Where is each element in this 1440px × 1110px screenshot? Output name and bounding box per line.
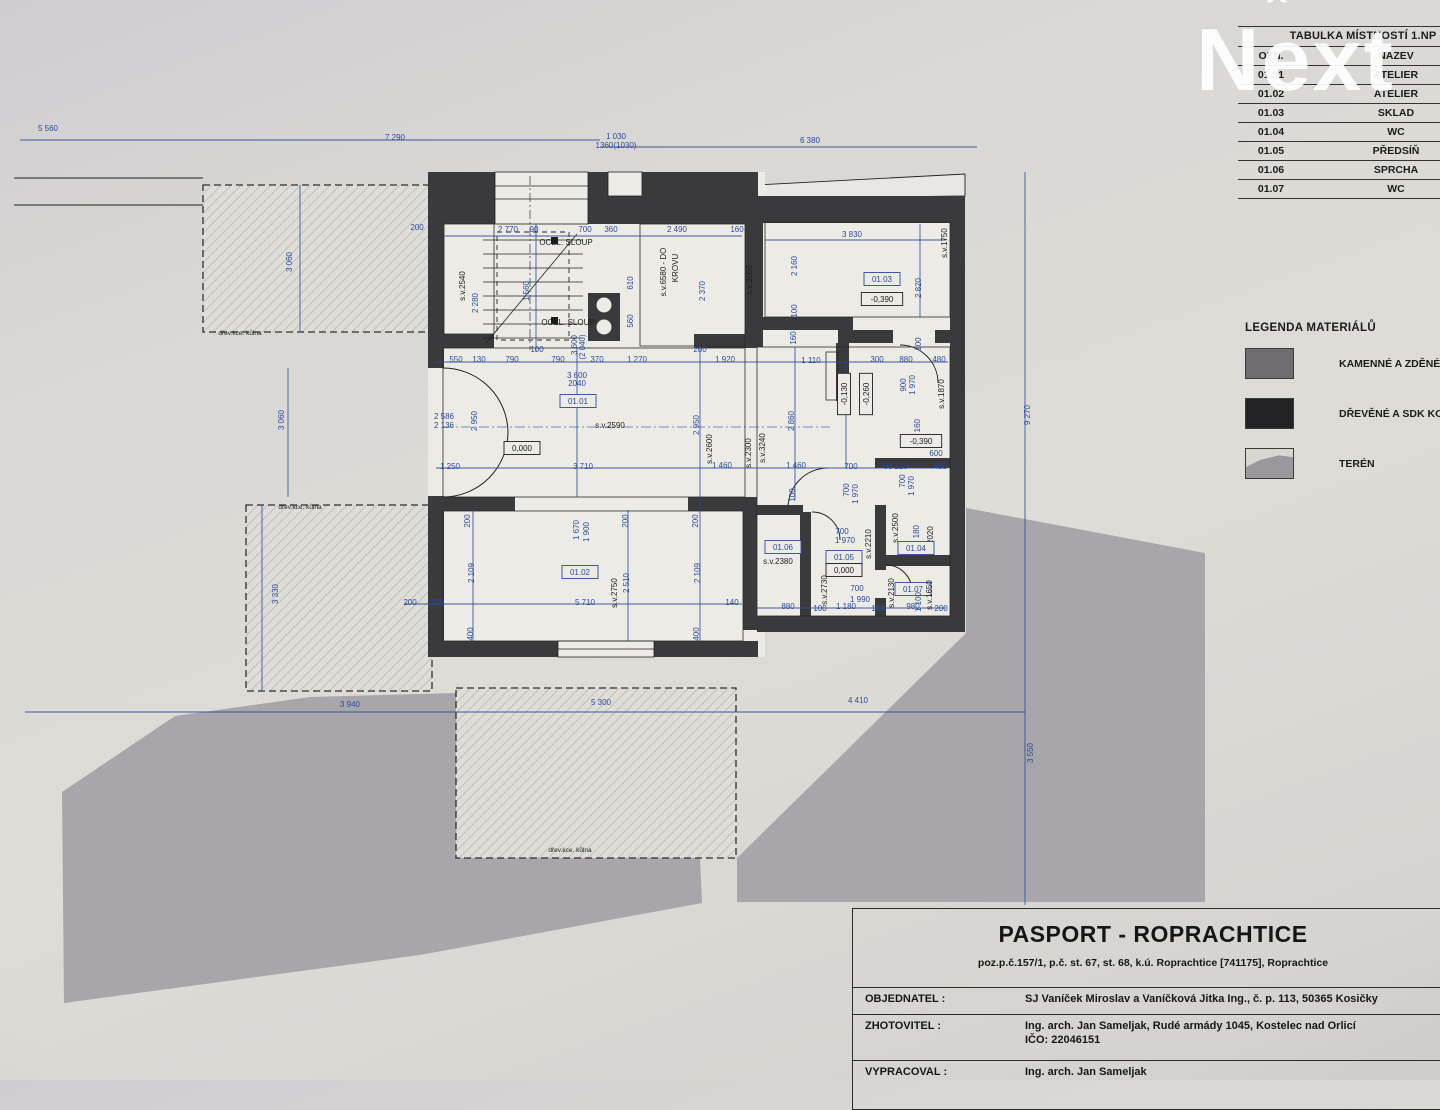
svg-text:100: 100 xyxy=(813,604,827,613)
svg-text:1 030: 1 030 xyxy=(606,132,627,141)
svg-text:2 820: 2 820 xyxy=(914,277,923,298)
svg-text:610: 610 xyxy=(626,276,635,290)
plan-label: s.v.2750 xyxy=(610,578,619,608)
plan-label: 610 xyxy=(626,276,635,290)
plan-label: 9 270 xyxy=(1023,404,1032,425)
plan-label: 2 510 xyxy=(622,572,631,593)
plan-label: 1 030 xyxy=(606,132,627,141)
plan-label-boxed: -0,390 xyxy=(900,435,941,448)
plan-label: s.v.2210 xyxy=(864,529,873,559)
svg-text:dřev.kce. kůlna: dřev.kce. kůlna xyxy=(548,846,592,854)
plan-label: 2 950 xyxy=(470,410,479,431)
plan-label: 5 710 xyxy=(575,598,596,607)
plan-label-boxed: 01.06 xyxy=(765,541,801,554)
svg-text:0,000: 0,000 xyxy=(834,566,855,575)
plan-label: 400 xyxy=(692,627,701,641)
svg-text:790: 790 xyxy=(505,355,519,364)
svg-text:s.v.6580 - DO: s.v.6580 - DO xyxy=(659,248,668,297)
svg-text:0,000: 0,000 xyxy=(512,444,533,453)
svg-text:1 970: 1 970 xyxy=(907,475,916,496)
svg-text:100: 100 xyxy=(871,604,885,613)
plan-label: (2 040) xyxy=(578,334,587,360)
plan-label: 130 xyxy=(472,355,486,364)
svg-text:(2 040): (2 040) xyxy=(578,334,587,360)
plan-label: 200 xyxy=(621,514,630,528)
svg-text:s.v.2730: s.v.2730 xyxy=(820,575,829,605)
plan-label: 200 xyxy=(403,598,417,607)
svg-text:3 060: 3 060 xyxy=(277,409,286,430)
plan-label: OCEL. SLOUP xyxy=(539,238,592,247)
svg-text:2040: 2040 xyxy=(568,379,586,388)
svg-text:01.01: 01.01 xyxy=(568,397,589,406)
plan-label: 3 060 xyxy=(277,409,286,430)
svg-text:s.v.2540: s.v.2540 xyxy=(458,271,467,301)
plan-label: 100 xyxy=(788,488,797,502)
svg-text:OCEL. SLOUP: OCEL. SLOUP xyxy=(539,238,592,247)
plan-label: 3 830 xyxy=(842,230,863,239)
plan-label-boxed: 0,000 xyxy=(826,564,862,577)
svg-text:900: 900 xyxy=(899,378,908,392)
svg-text:480: 480 xyxy=(932,355,946,364)
svg-text:4 410: 4 410 xyxy=(848,696,869,705)
svg-text:dřev.kce. kůlna: dřev.kce. kůlna xyxy=(278,503,322,511)
plan-label: 150 xyxy=(430,598,444,607)
svg-text:550: 550 xyxy=(449,355,463,364)
svg-text:360: 360 xyxy=(604,225,618,234)
plan-label: s.v.2730 xyxy=(820,575,829,605)
svg-text:140: 140 xyxy=(725,598,739,607)
plan-label-boxed: 01.01 xyxy=(560,395,596,408)
svg-text:1360(1030): 1360(1030) xyxy=(596,141,637,150)
svg-text:3 060: 3 060 xyxy=(285,251,294,272)
svg-text:-0,260: -0,260 xyxy=(862,382,871,405)
drawing-subtitle: poz.p.č.157/1, p.č. st. 67, st. 68, k.ú.… xyxy=(853,957,1440,969)
plan-label: 100 xyxy=(530,345,544,354)
svg-text:880: 880 xyxy=(781,602,795,611)
plan-label: 200 xyxy=(693,345,707,354)
svg-text:-0,390: -0,390 xyxy=(910,437,933,446)
plan-label: 1 920 xyxy=(715,355,736,364)
svg-text:01.05: 01.05 xyxy=(834,553,855,562)
plan-label: dřev.kce. kůlna xyxy=(218,329,262,337)
svg-text:s.v.2600: s.v.2600 xyxy=(705,434,714,464)
plan-label: 6 380 xyxy=(800,136,821,145)
svg-text:880: 880 xyxy=(899,355,913,364)
plan-label: 2 490 xyxy=(667,225,688,234)
plan-label: 90 xyxy=(884,462,893,471)
plan-label: 1 560 xyxy=(522,280,531,301)
plan-label: 2 770 xyxy=(498,225,519,234)
plan-label-boxed: 0,000 xyxy=(504,442,540,455)
plan-label: 1 970 xyxy=(908,374,917,395)
plan-label: 700 xyxy=(578,225,592,234)
scanned-floor-plan-photo: { "watermark": {"text_n": "N", "text_e":… xyxy=(0,0,1440,1080)
plan-label: s.v.6580 - DO xyxy=(659,248,668,297)
table-row: 01.07WC xyxy=(1238,180,1440,199)
plan-label: 700 xyxy=(842,483,851,497)
plan-label: OCEL. SLOUP xyxy=(541,318,594,327)
plan-label: 5 560 xyxy=(38,124,59,133)
svg-text:-0,390: -0,390 xyxy=(871,295,894,304)
svg-text:1 110: 1 110 xyxy=(801,356,821,365)
plan-label: s.v.2500 xyxy=(891,513,900,543)
plan-label: 2 950 xyxy=(692,414,701,435)
plan-label: 100 xyxy=(790,304,799,318)
plan-label: 1360(1030) xyxy=(596,141,637,150)
plan-label: 480 xyxy=(932,355,946,364)
svg-text:2 950: 2 950 xyxy=(692,414,701,435)
svg-text:160: 160 xyxy=(789,331,798,345)
legend-item-masonry: KAMENNÉ A ZDĚNÉ K xyxy=(1245,348,1440,379)
svg-text:210: 210 xyxy=(894,462,908,471)
plan-label: 140 xyxy=(725,598,739,607)
svg-text:370: 370 xyxy=(590,355,604,364)
svg-text:100: 100 xyxy=(790,304,799,318)
svg-text:s.v.2750: s.v.2750 xyxy=(610,578,619,608)
plan-label-boxed: 01.02 xyxy=(562,566,598,579)
svg-text:200: 200 xyxy=(693,345,707,354)
plan-label: s.v.3060 xyxy=(745,265,754,295)
svg-text:2 160: 2 160 xyxy=(790,255,799,276)
plan-label: 880 xyxy=(899,355,913,364)
plan-label: s.v.2600 xyxy=(705,434,714,464)
svg-text:-0,130: -0,130 xyxy=(840,382,849,405)
svg-text:700: 700 xyxy=(578,225,592,234)
plan-label-boxed: -0,260 xyxy=(860,373,873,414)
svg-text:5 560: 5 560 xyxy=(38,124,59,133)
terrain-swatch xyxy=(1245,448,1294,479)
svg-text:1 560: 1 560 xyxy=(522,280,531,301)
svg-text:2 280: 2 280 xyxy=(471,292,480,313)
svg-text:s.v.1750: s.v.1750 xyxy=(940,228,949,258)
svg-text:90: 90 xyxy=(884,462,893,471)
plan-label: 1 100 xyxy=(914,591,923,612)
title-block-row-objednatel: OBJEDNATEL : SJ Vaníček Miroslav a Vaníč… xyxy=(853,987,1440,1014)
svg-text:90: 90 xyxy=(530,225,539,234)
svg-text:100: 100 xyxy=(914,337,923,351)
plan-label: 1 670 xyxy=(572,519,581,540)
plan-label: 790 xyxy=(551,355,565,364)
plan-label: 200 xyxy=(934,604,948,613)
masonry-swatch xyxy=(1245,348,1294,379)
plan-label: 3 060 xyxy=(285,251,294,272)
legend-title: LEGENDA MATERIÁLŮ xyxy=(1245,322,1440,334)
svg-text:5 300: 5 300 xyxy=(591,698,612,707)
plan-label: 3 330 xyxy=(271,583,280,604)
plan-label: 1 460 xyxy=(712,461,733,470)
plan-label: s.v.2380 xyxy=(763,557,793,566)
plan-label: 700 xyxy=(835,527,849,536)
svg-text:200: 200 xyxy=(403,598,417,607)
svg-text:160: 160 xyxy=(730,225,744,234)
svg-text:01.02: 01.02 xyxy=(570,568,591,577)
svg-text:9 270: 9 270 xyxy=(1023,404,1032,425)
svg-text:01.04: 01.04 xyxy=(906,544,927,553)
plan-label-boxed: 01.04 xyxy=(898,542,934,555)
svg-text:100: 100 xyxy=(530,345,544,354)
plan-label: 90 xyxy=(530,225,539,234)
plan-label: 400 xyxy=(466,627,475,641)
plan-label: 2 160 xyxy=(790,255,799,276)
svg-text:s.v.2500: s.v.2500 xyxy=(891,513,900,543)
svg-text:s.v.2300: s.v.2300 xyxy=(744,438,753,468)
plan-label: dřev.kce. kůlna xyxy=(278,503,322,511)
svg-text:790: 790 xyxy=(551,355,565,364)
plan-label-boxed: -0,390 xyxy=(861,293,902,306)
drawing-title: PASPORT - ROPRACHTICE xyxy=(853,909,1440,948)
svg-text:130: 130 xyxy=(472,355,486,364)
svg-text:700: 700 xyxy=(898,474,907,488)
plan-label: 1 460 xyxy=(786,461,807,470)
svg-text:1 970: 1 970 xyxy=(908,374,917,395)
svg-text:2 510: 2 510 xyxy=(622,572,631,593)
plan-label: s.v.2540 xyxy=(458,271,467,301)
svg-text:6 380: 6 380 xyxy=(800,136,821,145)
plan-label: 700 xyxy=(898,474,907,488)
svg-text:s.v.3060: s.v.3060 xyxy=(745,265,754,295)
plan-label: 880 xyxy=(781,602,795,611)
svg-text:s.v.3240: s.v.3240 xyxy=(758,433,767,463)
plan-label: 160 xyxy=(730,225,744,234)
plan-label: s.v.2300 xyxy=(744,438,753,468)
caret-icon: ˆ xyxy=(1267,0,1287,43)
plan-label: 1 110 xyxy=(801,356,821,365)
legend-item-wood: DŘEVĚNÉ A SDK KO xyxy=(1245,398,1440,429)
svg-text:150: 150 xyxy=(430,598,444,607)
svg-text:2 136: 2 136 xyxy=(434,421,455,430)
plan-label: 1 970 xyxy=(907,475,916,496)
svg-text:2 770: 2 770 xyxy=(498,225,519,234)
svg-text:1 460: 1 460 xyxy=(786,461,807,470)
svg-text:200: 200 xyxy=(691,514,700,528)
plan-label: 100 xyxy=(871,604,885,613)
plan-label: 2040 xyxy=(568,379,586,388)
svg-text:700: 700 xyxy=(842,483,851,497)
plan-label: 900 xyxy=(899,378,908,392)
svg-text:400: 400 xyxy=(692,627,701,641)
svg-text:1 270: 1 270 xyxy=(627,355,648,364)
svg-text:3 330: 3 330 xyxy=(271,583,280,604)
next-watermark-logo: Neˆxt xyxy=(1196,16,1395,104)
svg-text:s.v.2210: s.v.2210 xyxy=(864,529,873,559)
plan-label: 700 xyxy=(844,462,858,471)
svg-text:3 830: 3 830 xyxy=(842,230,863,239)
plan-label: 370 xyxy=(590,355,604,364)
svg-text:01.03: 01.03 xyxy=(872,275,893,284)
svg-text:1 970: 1 970 xyxy=(835,536,856,545)
svg-text:1 100: 1 100 xyxy=(914,591,923,612)
plan-label: 1 250 xyxy=(440,462,461,471)
plan-label: 2 860 xyxy=(787,410,796,431)
plan-label: 550 xyxy=(449,355,463,364)
plan-label: s.v.3240 xyxy=(758,433,767,463)
plan-label: 210 xyxy=(894,462,908,471)
svg-text:2 109: 2 109 xyxy=(693,562,702,583)
plan-label: s.v.1750 xyxy=(940,228,949,258)
plan-label: 360 xyxy=(604,225,618,234)
plan-label: 1 270 xyxy=(627,355,648,364)
svg-text:2 586: 2 586 xyxy=(434,412,455,421)
svg-text:3 550: 3 550 xyxy=(1026,742,1035,763)
plan-label: 2 820 xyxy=(914,277,923,298)
plan-label: 1 970 xyxy=(851,483,860,504)
svg-text:01.06: 01.06 xyxy=(773,543,794,552)
table-row: 01.05PŘEDSÍŇ xyxy=(1238,142,1440,161)
plan-label-boxed: -0,130 xyxy=(838,373,851,414)
plan-label: 200 xyxy=(410,223,424,232)
chimney xyxy=(588,293,620,341)
svg-text:200: 200 xyxy=(410,223,424,232)
plan-label: 100 xyxy=(813,604,827,613)
svg-text:s.v.1870: s.v.1870 xyxy=(937,379,946,409)
svg-text:1 250: 1 250 xyxy=(440,462,461,471)
legend-item-terrain: TERÉN xyxy=(1245,448,1440,479)
svg-text:560: 560 xyxy=(626,314,635,328)
svg-text:200: 200 xyxy=(934,604,948,613)
svg-text:3 940: 3 940 xyxy=(340,700,361,709)
svg-text:700: 700 xyxy=(835,527,849,536)
svg-text:1 460: 1 460 xyxy=(712,461,733,470)
svg-text:100: 100 xyxy=(788,488,797,502)
svg-text:KROVU: KROVU xyxy=(671,254,680,283)
plan-label: 300 xyxy=(870,355,884,364)
svg-text:300: 300 xyxy=(870,355,884,364)
wood-swatch xyxy=(1245,398,1294,429)
plan-label: 560 xyxy=(626,314,635,328)
svg-text:2 370: 2 370 xyxy=(698,280,707,301)
plan-label-boxed: 01.03 xyxy=(864,273,900,286)
materials-legend: LEGENDA MATERIÁLŮ KAMENNÉ A ZDĚNÉ K DŘEV… xyxy=(1245,322,1440,498)
plan-label: 2 586 xyxy=(434,412,455,421)
plan-label: 100 xyxy=(914,337,923,351)
plan-label: s.v.2590 xyxy=(595,421,625,430)
svg-text:2 109: 2 109 xyxy=(467,562,476,583)
svg-text:dřev.kce. kůlna: dřev.kce. kůlna xyxy=(218,329,262,337)
plan-label: 3 940 xyxy=(340,700,361,709)
table-row: 01.06SPRCHA xyxy=(1238,161,1440,180)
plan-label: 3 550 xyxy=(1026,742,1035,763)
svg-text:2 950: 2 950 xyxy=(470,410,479,431)
plan-label: 2 280 xyxy=(471,292,480,313)
plan-label: 2 370 xyxy=(698,280,707,301)
plan-label: 1 900 xyxy=(582,521,591,542)
plan-label: 480 xyxy=(933,462,947,471)
svg-text:400: 400 xyxy=(466,627,475,641)
svg-text:OCEL. SLOUP: OCEL. SLOUP xyxy=(541,318,594,327)
svg-text:1 970: 1 970 xyxy=(851,483,860,504)
title-block-row-zhotovitel: ZHOTOVITEL : Ing. arch. Jan Sameljak, Ru… xyxy=(853,1014,1440,1060)
svg-text:700: 700 xyxy=(844,462,858,471)
svg-text:s.v.2380: s.v.2380 xyxy=(763,557,793,566)
plan-label: 7 290 xyxy=(385,133,406,142)
plan-label: dřev.kce. kůlna xyxy=(548,846,592,854)
plan-label: 700 xyxy=(850,584,864,593)
plan-label: 2 109 xyxy=(467,562,476,583)
svg-text:s.v.1650: s.v.1650 xyxy=(925,580,934,610)
svg-text:2 490: 2 490 xyxy=(667,225,688,234)
title-block-row-vypracoval: VYPRACOVAL : Ing. arch. Jan Sameljak xyxy=(853,1060,1440,1090)
plan-label: KROVU xyxy=(671,254,680,283)
plan-label: 600 xyxy=(929,449,943,458)
title-block-head: PASPORT - ROPRACHTICE poz.p.č.157/1, p.č… xyxy=(853,909,1440,987)
plan-label: 160 xyxy=(789,331,798,345)
plan-label: 2 109 xyxy=(693,562,702,583)
svg-text:5 710: 5 710 xyxy=(575,598,596,607)
plan-label: 5 300 xyxy=(591,698,612,707)
svg-text:s.v.2590: s.v.2590 xyxy=(595,421,625,430)
plan-label: 790 xyxy=(505,355,519,364)
plan-label-boxed: 01.05 xyxy=(826,551,862,564)
plan-label: s.v.1650 xyxy=(925,580,934,610)
svg-text:200: 200 xyxy=(621,514,630,528)
table-row: 01.04WC xyxy=(1238,123,1440,142)
plan-label: 1 970 xyxy=(835,536,856,545)
svg-text:3 710: 3 710 xyxy=(573,462,594,471)
svg-text:700: 700 xyxy=(850,584,864,593)
plan-label: 2 136 xyxy=(434,421,455,430)
plan-label: 1 180 xyxy=(836,602,857,611)
svg-text:1 900: 1 900 xyxy=(582,521,591,542)
plan-label: 4 410 xyxy=(848,696,869,705)
svg-text:480: 480 xyxy=(933,462,947,471)
svg-text:200: 200 xyxy=(463,514,472,528)
plan-label: 200 xyxy=(691,514,700,528)
plan-label: 200 xyxy=(463,514,472,528)
plan-label: 3 710 xyxy=(573,462,594,471)
svg-text:2 860: 2 860 xyxy=(787,410,796,431)
svg-text:1 920: 1 920 xyxy=(715,355,736,364)
svg-text:600: 600 xyxy=(929,449,943,458)
svg-text:1 670: 1 670 xyxy=(572,519,581,540)
plan-label: s.v.1870 xyxy=(937,379,946,409)
svg-text:7 290: 7 290 xyxy=(385,133,406,142)
svg-text:1 180: 1 180 xyxy=(836,602,857,611)
